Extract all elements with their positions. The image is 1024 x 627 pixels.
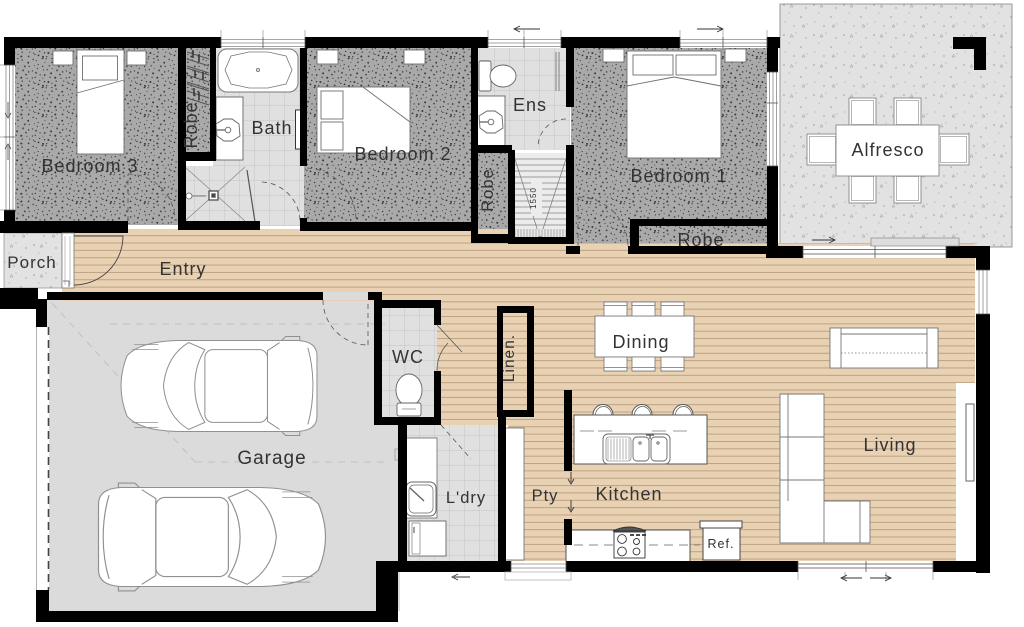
svg-text:L'dry: L'dry xyxy=(446,489,486,507)
svg-text:Robe: Robe xyxy=(479,168,497,211)
svg-text:1550: 1550 xyxy=(529,187,538,209)
svg-text:Kitchen: Kitchen xyxy=(595,484,662,504)
svg-text:WC: WC xyxy=(392,347,424,367)
svg-text:Garage: Garage xyxy=(237,448,306,469)
svg-text:Bath: Bath xyxy=(251,118,292,138)
svg-text:Robe: Robe xyxy=(677,230,724,250)
svg-text:Bedroom 2: Bedroom 2 xyxy=(354,144,451,164)
svg-text:Pty: Pty xyxy=(532,487,559,505)
svg-text:Alfresco: Alfresco xyxy=(851,140,924,160)
svg-text:Ref.: Ref. xyxy=(708,537,735,551)
svg-text:Linen.: Linen. xyxy=(501,334,518,382)
svg-text:Dining: Dining xyxy=(612,332,669,352)
svg-text:Bedroom 1: Bedroom 1 xyxy=(630,166,727,186)
svg-text:Living: Living xyxy=(863,435,916,455)
svg-text:Ens: Ens xyxy=(513,95,547,115)
svg-text:Bedroom 3: Bedroom 3 xyxy=(41,156,138,176)
svg-text:Robe: Robe xyxy=(181,101,201,148)
svg-text:Entry: Entry xyxy=(159,259,206,279)
svg-text:Porch: Porch xyxy=(7,253,56,272)
